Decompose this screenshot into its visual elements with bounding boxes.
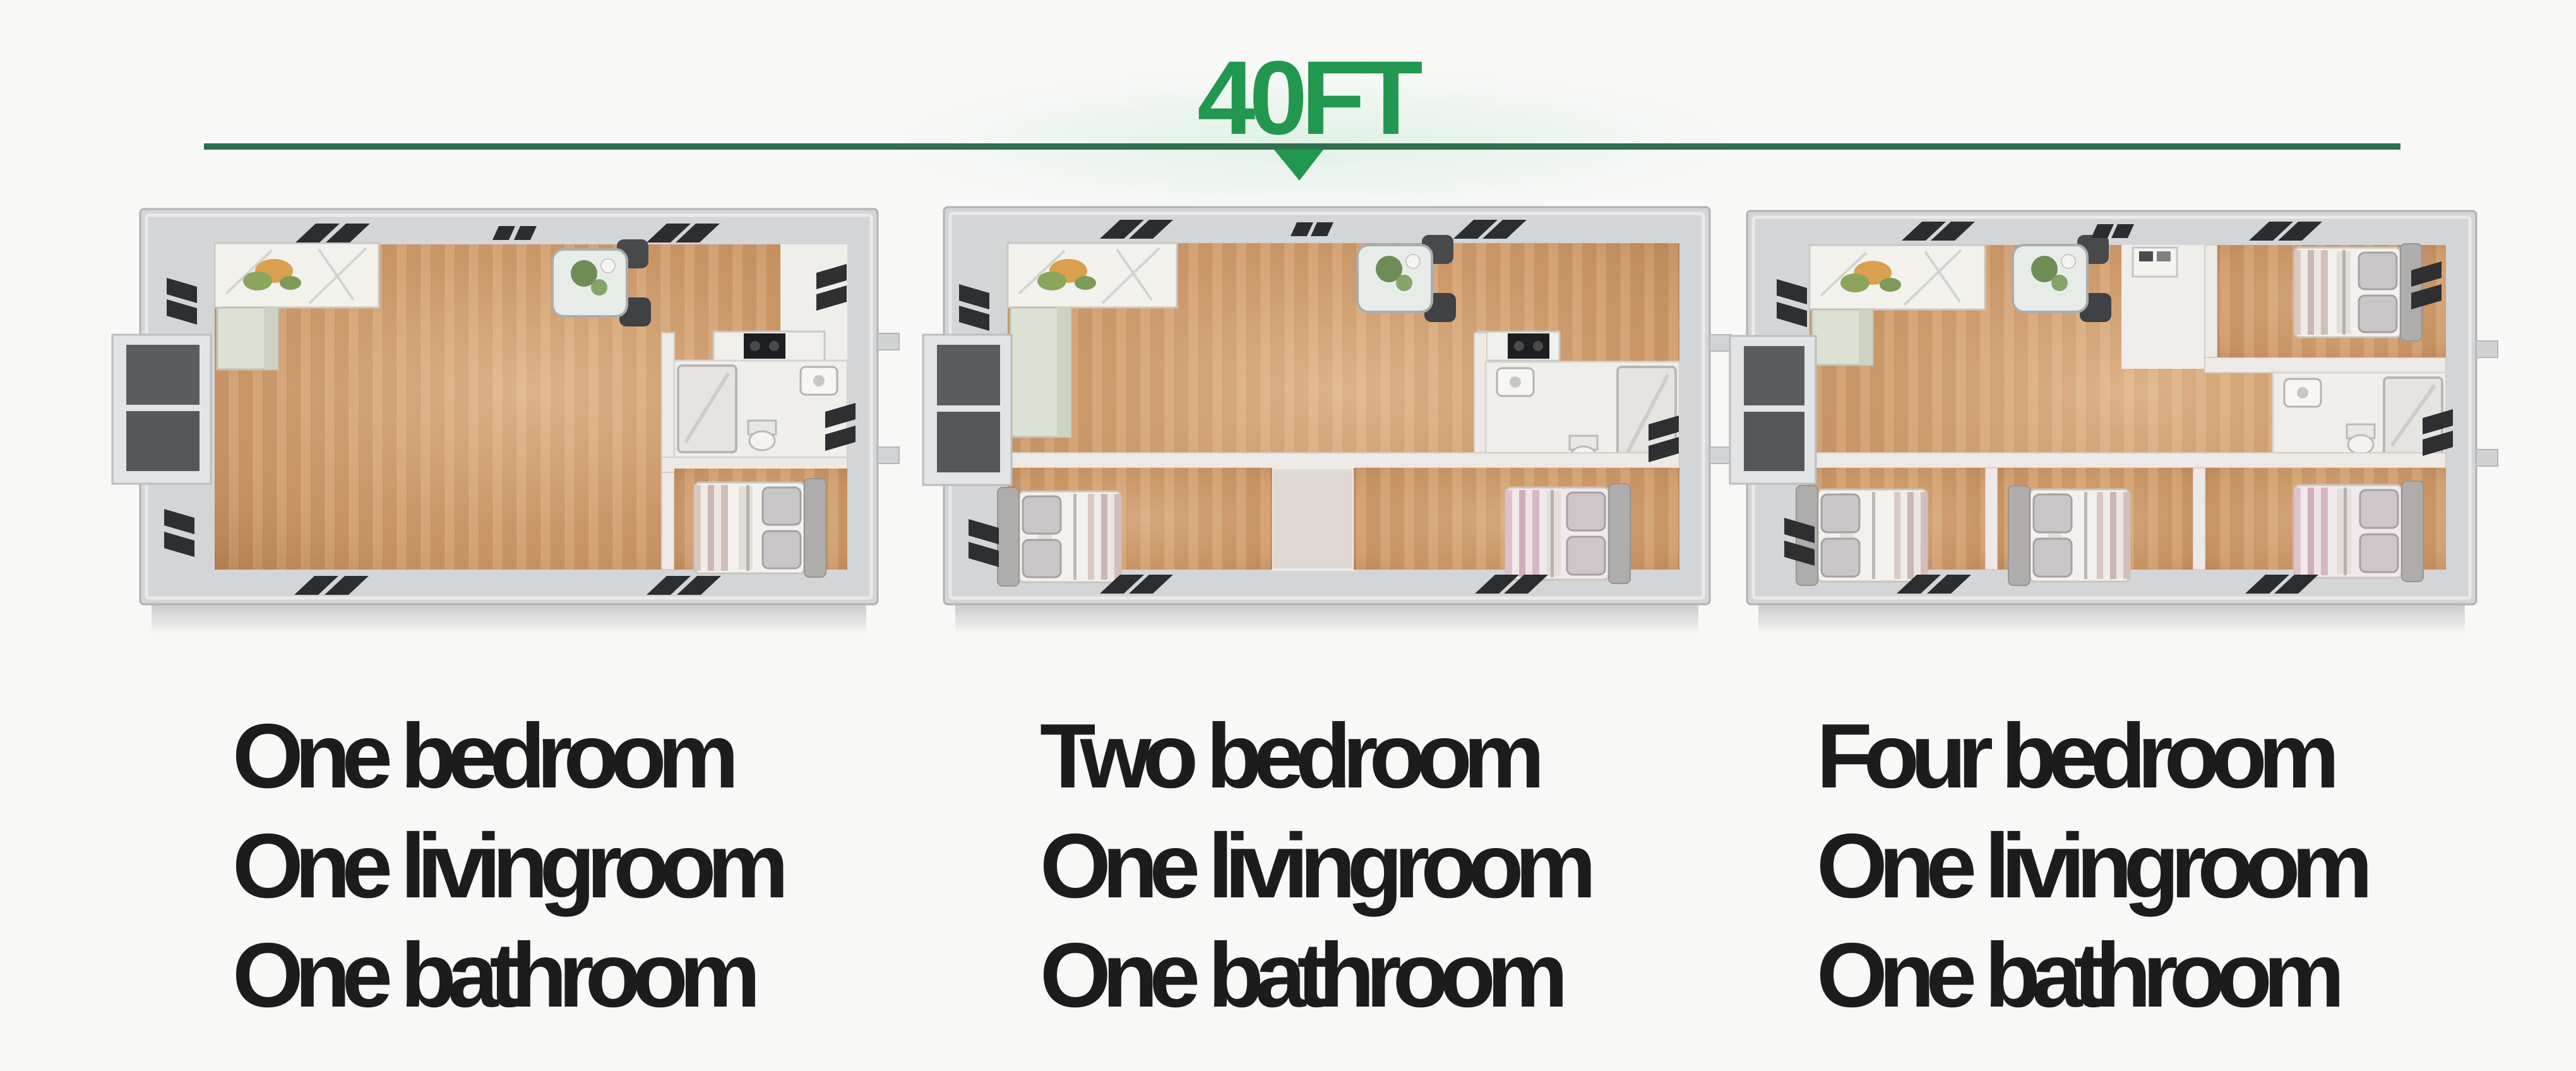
svg-text:Four bedroom: Four bedroom — [1816, 705, 2334, 807]
svg-text:One livingroom: One livingroom — [1816, 815, 2367, 917]
svg-text:One bathroom: One bathroom — [232, 924, 755, 1026]
svg-text:Two bedroom: Two bedroom — [1040, 705, 1539, 807]
svg-text:One bathroom: One bathroom — [1040, 924, 1563, 1026]
svg-text:40FT: 40FT — [1197, 40, 1422, 157]
svg-text:One bedroom: One bedroom — [232, 705, 734, 807]
svg-text:One bathroom: One bathroom — [1816, 924, 2339, 1026]
svg-text:One livingroom: One livingroom — [1040, 815, 1590, 917]
svg-text:One livingroom: One livingroom — [232, 815, 783, 917]
